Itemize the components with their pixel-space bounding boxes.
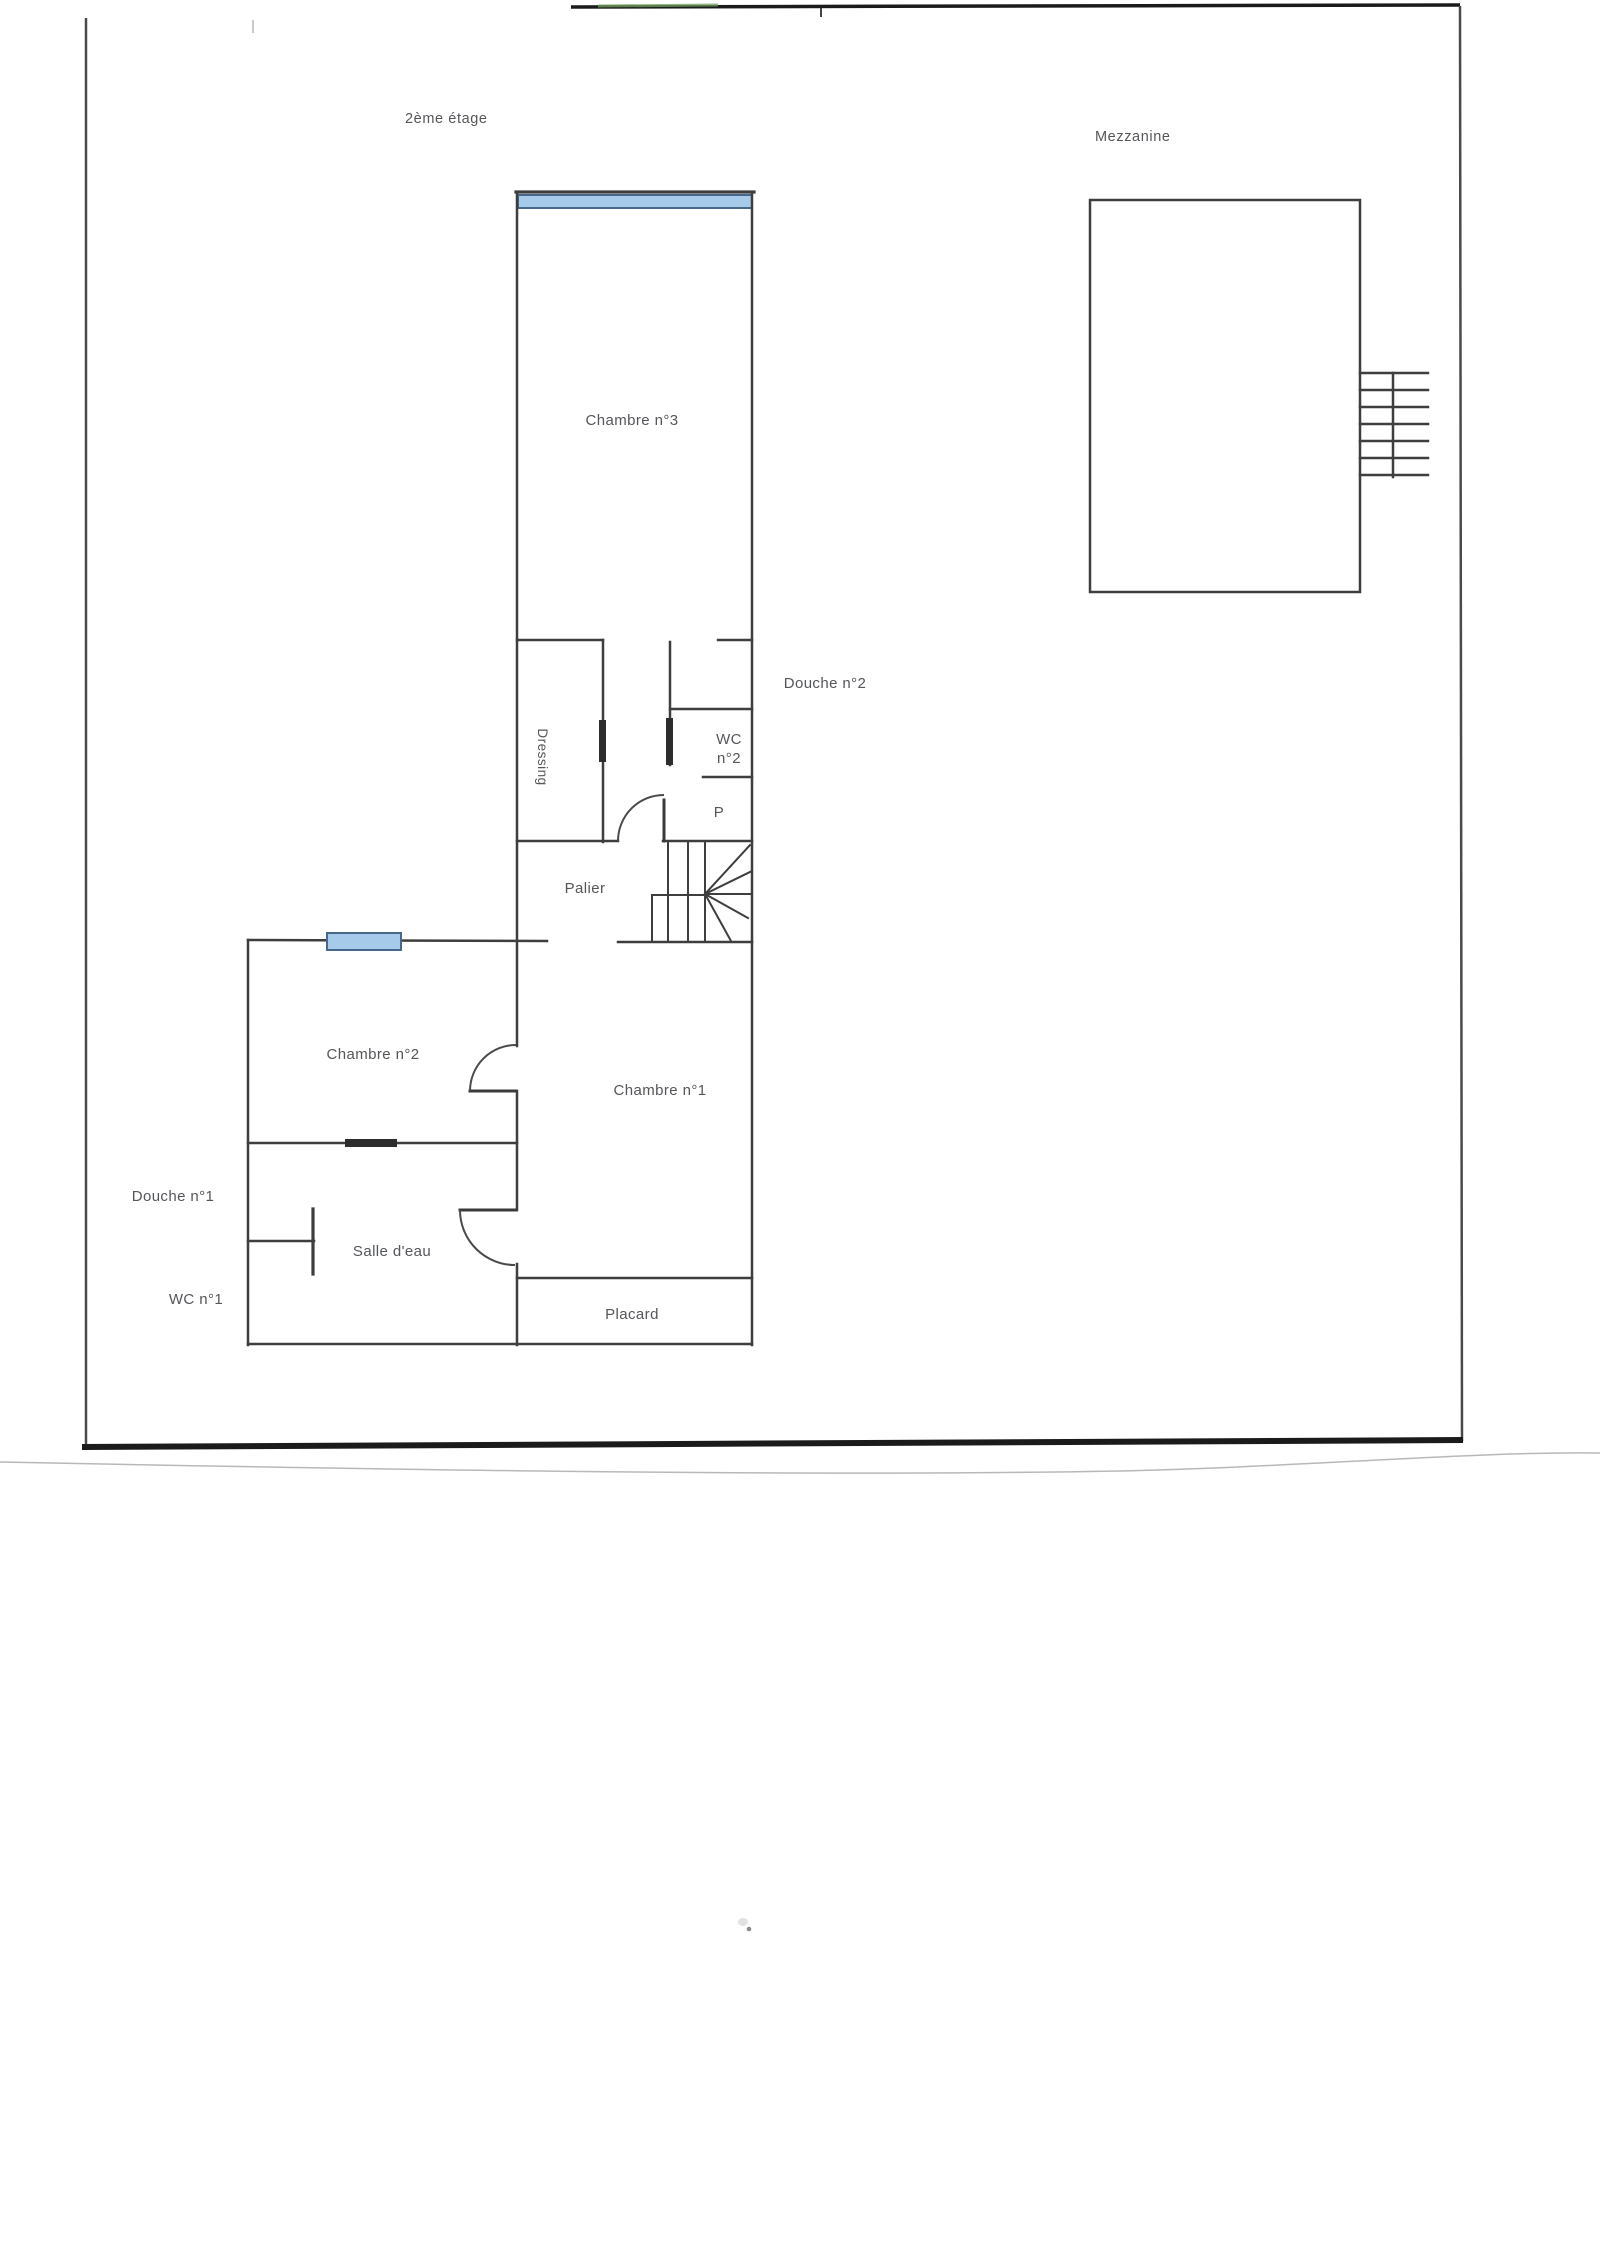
staircase-winder — [652, 843, 752, 941]
label-wc2-line2: n°2 — [717, 750, 741, 767]
door-panel-wc2 — [666, 718, 673, 765]
stair-tread-ray-1 — [705, 845, 750, 894]
label-chambre1: Chambre n°1 — [614, 1082, 707, 1099]
mezzanine-stairs — [1360, 373, 1428, 477]
label-placard-small: P — [714, 804, 724, 821]
window-chambre2 — [327, 933, 401, 950]
stair-tread-ray-2 — [705, 871, 752, 894]
page-bottom-edge — [82, 1440, 1463, 1447]
scan-speck — [747, 1927, 752, 1932]
floorplan-mezzanine — [1090, 200, 1428, 592]
door-arc-palier — [618, 795, 664, 841]
room-labels: Chambre n°3 Douche n°2 Dressing WC n°2 P… — [132, 412, 867, 1323]
mezzanine-title: Mezzanine — [1095, 129, 1171, 145]
label-wc1: WC n°1 — [169, 1291, 223, 1308]
label-chambre2: Chambre n°2 — [327, 1046, 420, 1063]
door-arc-chambre2 — [470, 1045, 516, 1091]
scan-smudge — [738, 1918, 748, 1926]
label-chambre3: Chambre n°3 — [586, 412, 679, 429]
page-curl-shadow — [0, 1453, 1600, 1473]
label-palier: Palier — [565, 880, 606, 897]
window-chambre3 — [518, 195, 752, 208]
scanned-page: 2ème étage Mezzanine — [0, 0, 1600, 2261]
door-arc-salledeau — [460, 1210, 515, 1265]
door-panel-dressing — [599, 720, 606, 762]
label-placard: Placard — [605, 1306, 659, 1323]
mezzanine-room — [1090, 200, 1360, 592]
page-right-edge — [1460, 6, 1462, 1441]
label-douche2: Douche n°2 — [784, 675, 867, 692]
floor-title: 2ème étage — [405, 111, 488, 127]
label-wc2-line1: WC — [716, 731, 742, 748]
scan-green-artifact — [598, 5, 718, 6]
door-panel-chambre2-salledeau — [345, 1139, 397, 1147]
floorplan-svg: 2ème étage Mezzanine — [0, 0, 1600, 2261]
floorplan-second-floor: Chambre n°3 Douche n°2 Dressing WC n°2 P… — [132, 192, 867, 1345]
label-dressing: Dressing — [535, 728, 550, 785]
label-salle-deau: Salle d'eau — [353, 1243, 431, 1260]
label-douche1: Douche n°1 — [132, 1188, 215, 1205]
